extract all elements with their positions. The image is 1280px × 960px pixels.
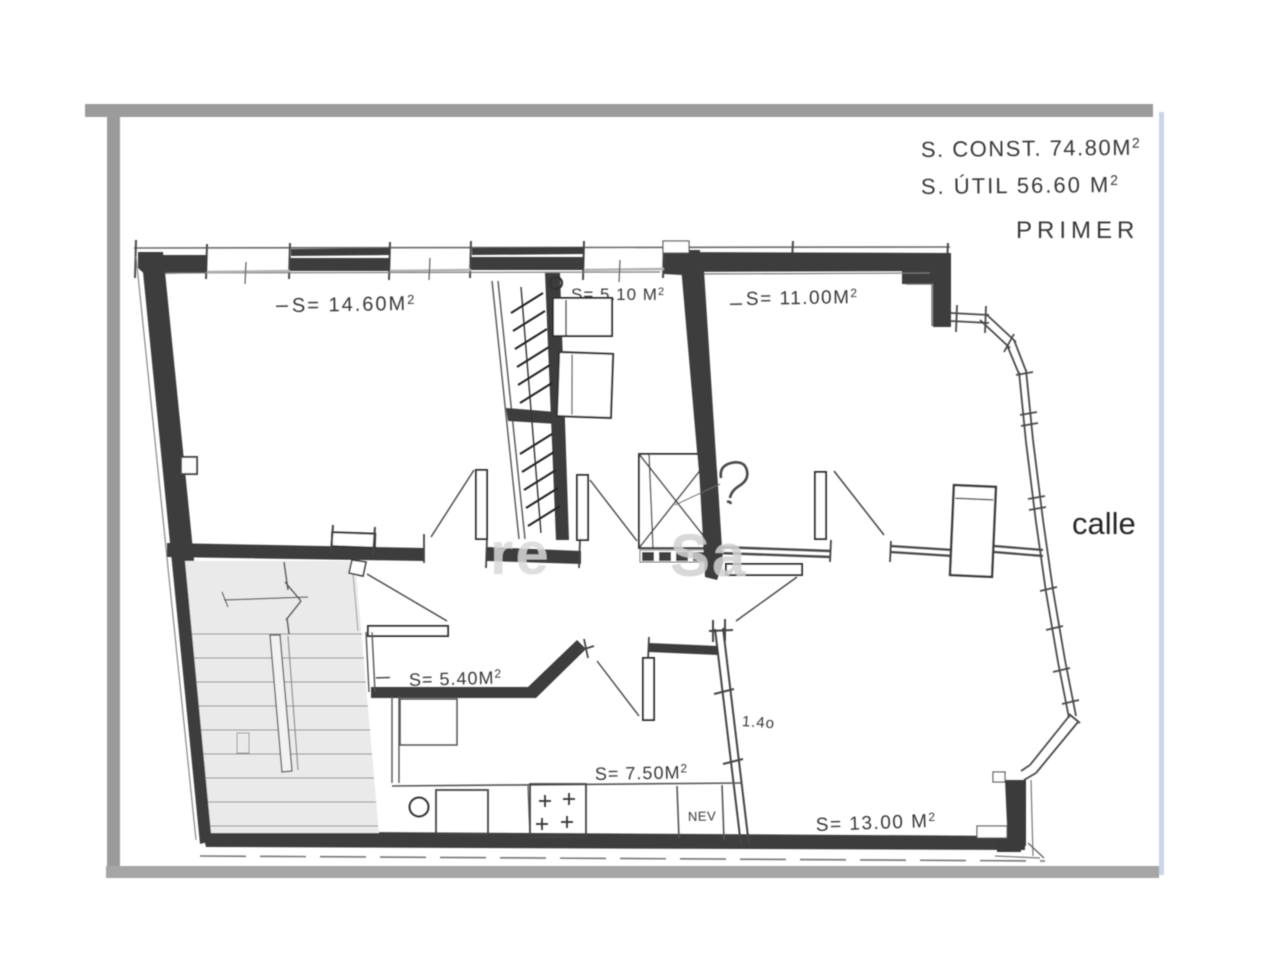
svg-text:S. ÚTIL 56.60 M2: S. ÚTIL 56.60 M2 [921, 172, 1120, 199]
svg-text:PRIMER: PRIMER [1016, 217, 1139, 244]
svg-text:S= 7.50M2: S= 7.50M2 [595, 761, 689, 784]
svg-text:S= 5.40M2: S= 5.40M2 [409, 667, 503, 690]
svg-text:S= 14.60M2: S= 14.60M2 [292, 292, 417, 317]
svg-text:S. CONST. 74.80M2: S. CONST. 74.80M2 [921, 135, 1142, 162]
svg-text:S= 13.00 M2: S= 13.00 M2 [815, 810, 937, 836]
svg-text:re: re [490, 520, 551, 587]
svg-text:Sa: Sa [670, 522, 747, 589]
svg-text:S= 11.00M2: S= 11.00M2 [746, 286, 859, 310]
svg-text:NEV: NEV [688, 808, 716, 823]
svg-text:calle: calle [1072, 506, 1136, 541]
svg-text:1.4o: 1.4o [741, 713, 775, 732]
